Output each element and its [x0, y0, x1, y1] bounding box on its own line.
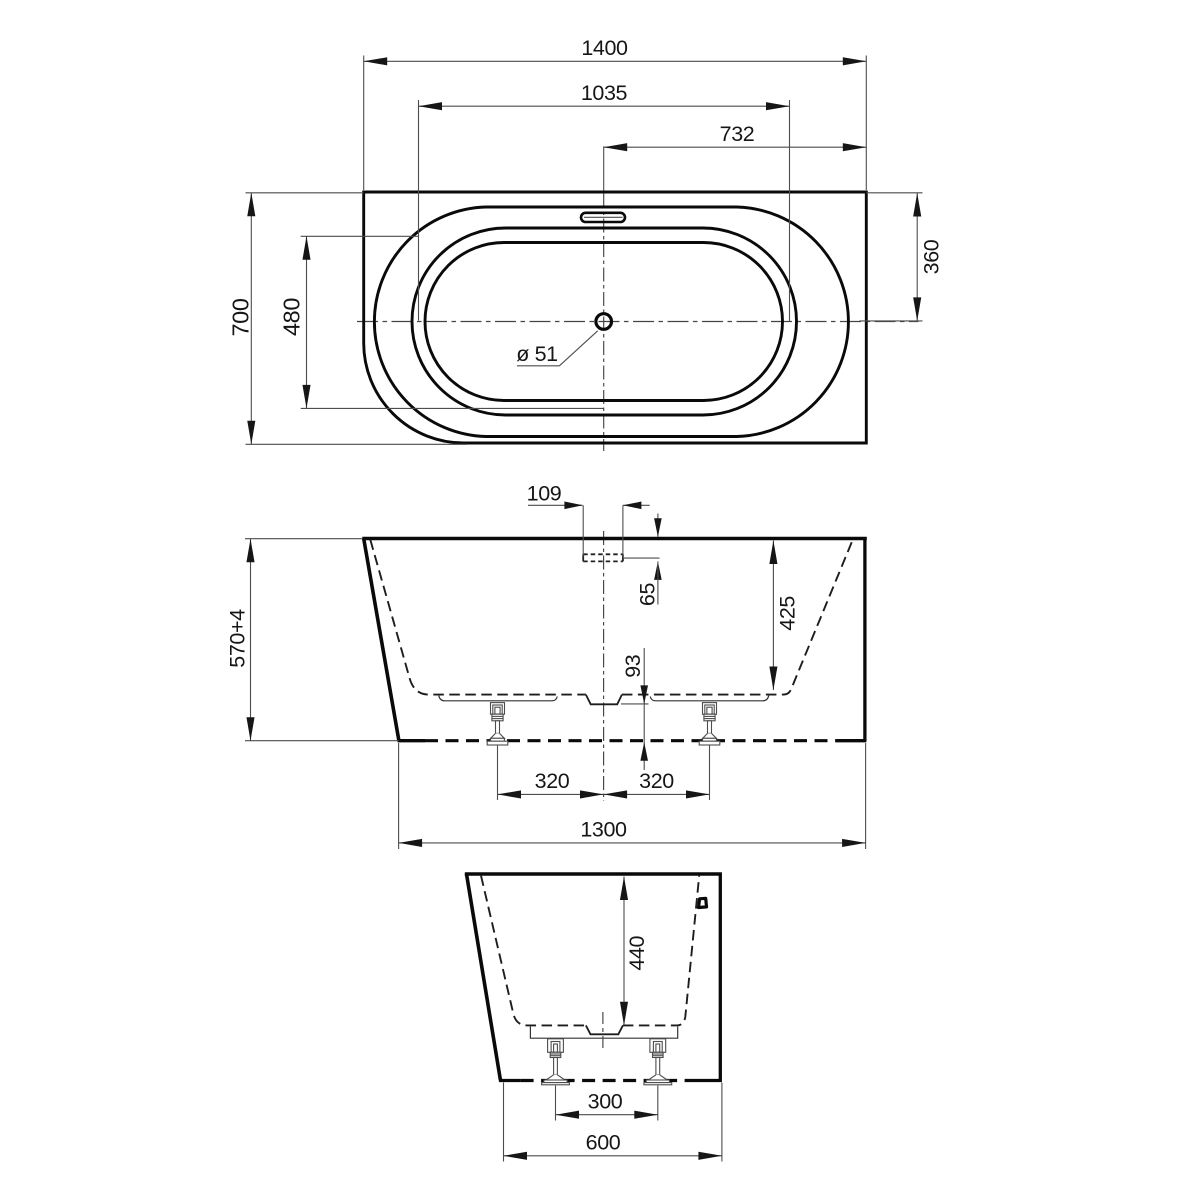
svg-text:570+4: 570+4: [225, 609, 249, 668]
svg-text:425: 425: [775, 596, 799, 631]
svg-text:109: 109: [527, 481, 562, 505]
svg-text:1035: 1035: [581, 81, 628, 105]
svg-text:700: 700: [227, 298, 253, 336]
svg-text:300: 300: [588, 1089, 623, 1113]
svg-text:320: 320: [639, 769, 674, 793]
svg-text:93: 93: [621, 654, 645, 678]
svg-text:320: 320: [535, 769, 570, 793]
svg-text:440: 440: [625, 936, 649, 971]
svg-text:732: 732: [720, 122, 755, 146]
svg-text:65: 65: [636, 583, 660, 607]
svg-text:1400: 1400: [581, 36, 628, 60]
svg-text:360: 360: [919, 239, 943, 274]
svg-text:600: 600: [586, 1130, 621, 1154]
svg-text:480: 480: [279, 298, 305, 336]
svg-text:ø 51: ø 51: [516, 342, 557, 366]
svg-text:1300: 1300: [580, 818, 627, 842]
